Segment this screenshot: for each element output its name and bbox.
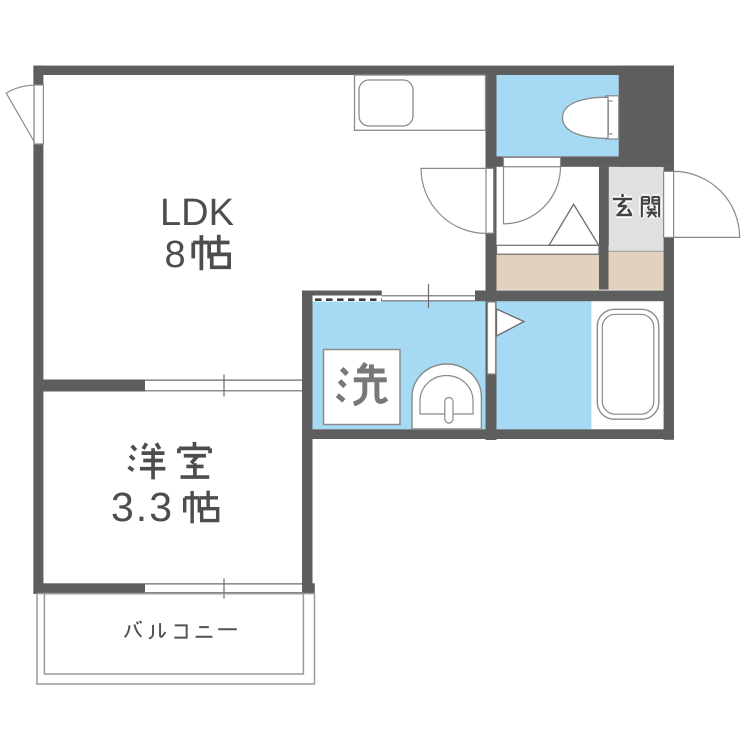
svg-text:8: 8: [165, 234, 186, 276]
svg-text:3.3: 3.3: [111, 484, 174, 530]
svg-text:LDK: LDK: [160, 192, 234, 234]
